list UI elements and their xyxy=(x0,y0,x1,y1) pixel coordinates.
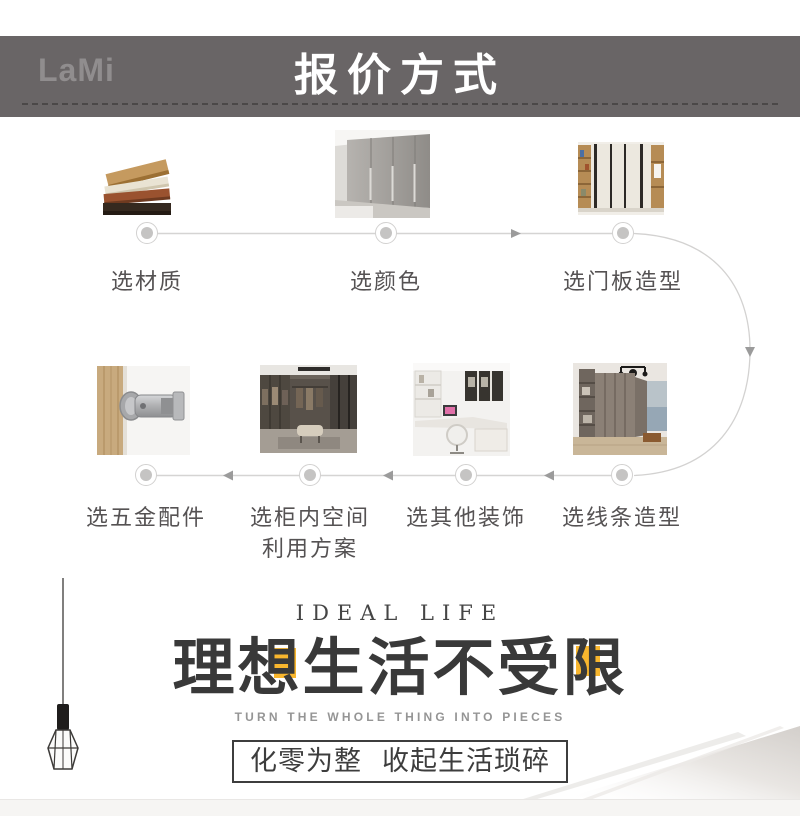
arrow-left-icon xyxy=(544,471,554,481)
material-thumbnail xyxy=(95,148,185,222)
header-dashed-line xyxy=(22,103,778,105)
step-label-trim-style: 选线条造型 xyxy=(522,502,722,533)
color-thumbnail xyxy=(335,130,430,218)
walk-in-closet-illustration xyxy=(260,365,357,453)
step-dot xyxy=(375,222,397,244)
step-label-color: 选颜色 xyxy=(286,266,486,297)
footer-strip xyxy=(0,799,800,816)
door-panel-wardrobe-illustration xyxy=(578,142,664,215)
step-dot xyxy=(135,464,157,486)
door-panel-thumbnail xyxy=(578,142,664,215)
header-bar: LaMi 报价方式 xyxy=(0,36,800,117)
promo-page: LaMi 报价方式 xyxy=(0,0,800,816)
trim-style-thumbnail xyxy=(573,363,667,455)
other-decor-thumbnail xyxy=(413,363,510,456)
step-dot xyxy=(455,464,477,486)
interior-space-thumbnail xyxy=(260,365,357,453)
arrow-down-icon xyxy=(745,347,755,357)
hero-eyebrow: IDEAL LIFE xyxy=(0,601,800,625)
step-dot xyxy=(299,464,321,486)
gray-wardrobe-illustration xyxy=(335,130,430,218)
arrow-right-icon xyxy=(511,229,521,238)
arrow-left-icon xyxy=(223,471,233,481)
page-title: 报价方式 xyxy=(0,50,800,102)
step-dot xyxy=(136,222,158,244)
step-dot-core xyxy=(617,227,629,239)
step-label-material: 选材质 xyxy=(47,266,247,297)
corner-desk-illustration xyxy=(413,363,510,456)
arrow-left-icon xyxy=(383,471,393,481)
step-dot-core xyxy=(141,227,153,239)
hardware-thumbnail xyxy=(97,366,190,455)
step-dot-core xyxy=(616,469,628,481)
slogan-right: 收起生活琐碎 xyxy=(382,746,550,776)
trim-wardrobe-illustration xyxy=(573,363,667,455)
step-dot-core xyxy=(460,469,472,481)
hinge-illustration xyxy=(97,366,190,455)
step-dot xyxy=(612,222,634,244)
material-stack-illustration xyxy=(95,148,185,222)
step-dot-core xyxy=(380,227,392,239)
hero-title: 理想生活不受限 xyxy=(0,636,800,702)
step-dot-core xyxy=(304,469,316,481)
step-label-door-panel: 选门板造型 xyxy=(523,266,723,297)
slogan-left: 化零为整 xyxy=(250,746,362,776)
hero-slogan-box: 化零为整收起生活琐碎 xyxy=(232,740,568,783)
step-dot xyxy=(611,464,633,486)
step-dot-core xyxy=(140,469,152,481)
step-label-line2: 利用方案 xyxy=(210,533,410,564)
